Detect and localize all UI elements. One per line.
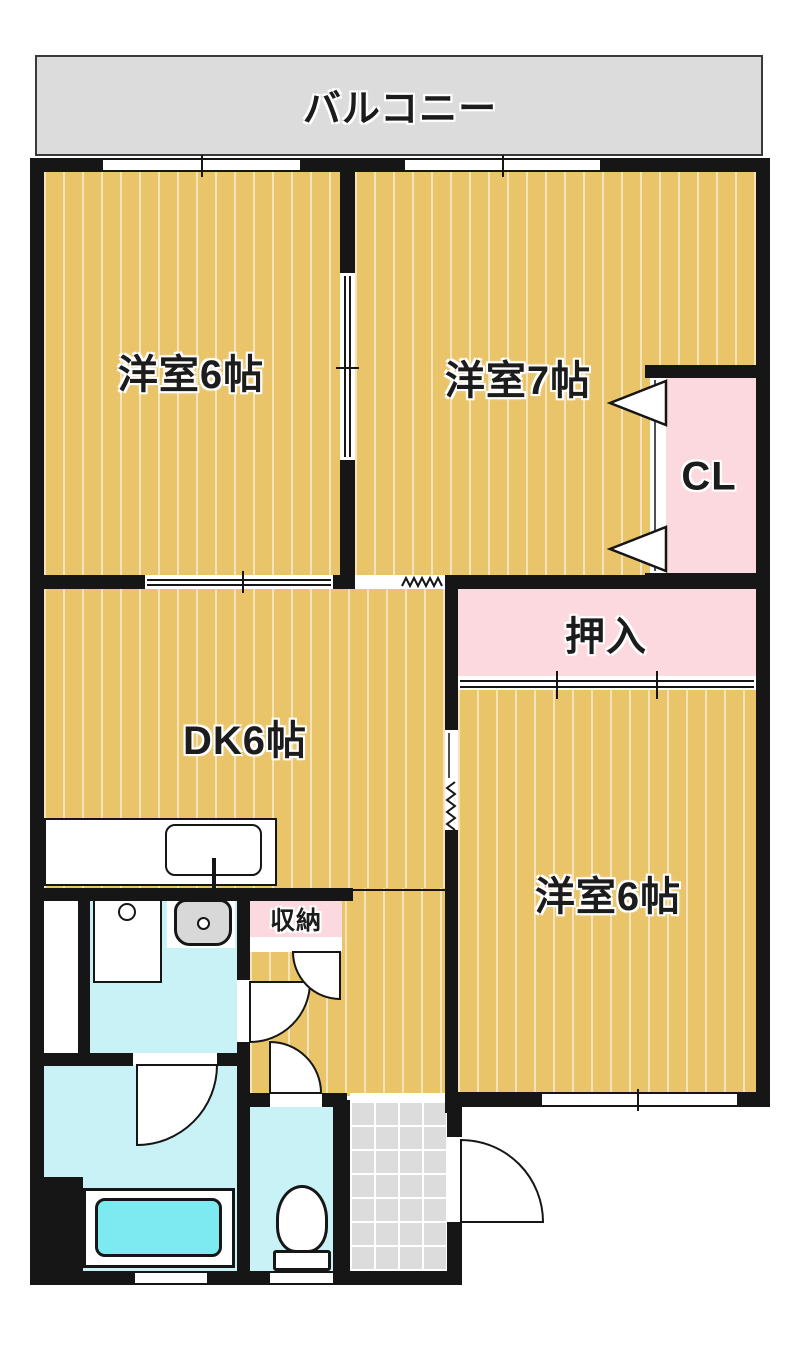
window-bathroom (135, 1273, 207, 1283)
balcony-label: バルコニー (303, 78, 497, 133)
wall-divider-center (333, 575, 355, 589)
wall-mid-upper (340, 172, 355, 273)
sliding-door-between-bedrooms (342, 273, 353, 460)
cl-bifold-door-strip (650, 378, 666, 573)
entrance-door-arc (461, 1140, 543, 1222)
toilet-base (273, 1250, 331, 1271)
bedroom-top-right-label: 洋室7帖 (445, 348, 591, 406)
wall-toilet-top-left (250, 1093, 270, 1107)
wall-washroom-right-lower (237, 1042, 250, 1093)
bedroom-bottom-right-label: 洋室6帖 (535, 864, 681, 922)
toilet-door-opening (270, 1094, 322, 1106)
wall-bottom-left (30, 1271, 462, 1285)
wall-cl-top (645, 365, 770, 378)
wall-oshiire-left (445, 575, 458, 690)
washroom-door-leaf (238, 980, 250, 1042)
bedroom-top-left-label: 洋室6帖 (118, 342, 264, 400)
wall-bedroom3-left-upper (445, 690, 458, 730)
wall-mid-lower (340, 460, 355, 575)
wall-bath-top-left (44, 1053, 133, 1066)
wall-washroom-divider (78, 900, 90, 1053)
wall-right (756, 158, 770, 1107)
washroom-side-space (44, 900, 78, 1053)
oshiire-label: 押入 (565, 604, 647, 662)
kitchen-sink (165, 824, 262, 876)
wall-bedroom3-left-lower (445, 830, 458, 1113)
storage-label: 収納 (270, 901, 322, 937)
dining-kitchen-label: DK6帖 (183, 708, 307, 766)
closet-cl-label: CL (681, 455, 736, 500)
genkan-floor (350, 1101, 447, 1271)
wall-bath-right (237, 1093, 250, 1285)
entrance-step (350, 1093, 447, 1101)
wall-bath-top-right (217, 1053, 237, 1066)
window-toilet (270, 1273, 333, 1283)
folding-door-dk-bedroom3 (446, 730, 457, 830)
basin-drain-icon (197, 917, 210, 930)
sliding-door-bedroom1-dk (145, 577, 333, 587)
wall-corner-mass (30, 1177, 83, 1285)
bathroom-door-leaf (133, 1054, 217, 1065)
window-bedroom2 (405, 160, 600, 170)
washer-drain-icon (118, 903, 136, 921)
wall-washroom-right-upper (237, 900, 250, 980)
wall-cl-bottom (645, 573, 770, 587)
toilet-bowl (276, 1185, 328, 1253)
bathtub (95, 1198, 222, 1257)
floor-plan: バルコニー (0, 0, 800, 1346)
window-bedroom3 (542, 1094, 737, 1105)
entrance-door-leaf (447, 1137, 462, 1222)
wall-genkan-left (333, 1100, 350, 1285)
accordion-opening-dk-bedroom2 (355, 577, 445, 587)
storage-shelf (250, 937, 342, 952)
oshiire-sliding-door (458, 676, 756, 689)
wall-left (30, 158, 44, 1285)
window-bedroom1 (103, 160, 300, 170)
wall-divider-left (30, 575, 145, 589)
